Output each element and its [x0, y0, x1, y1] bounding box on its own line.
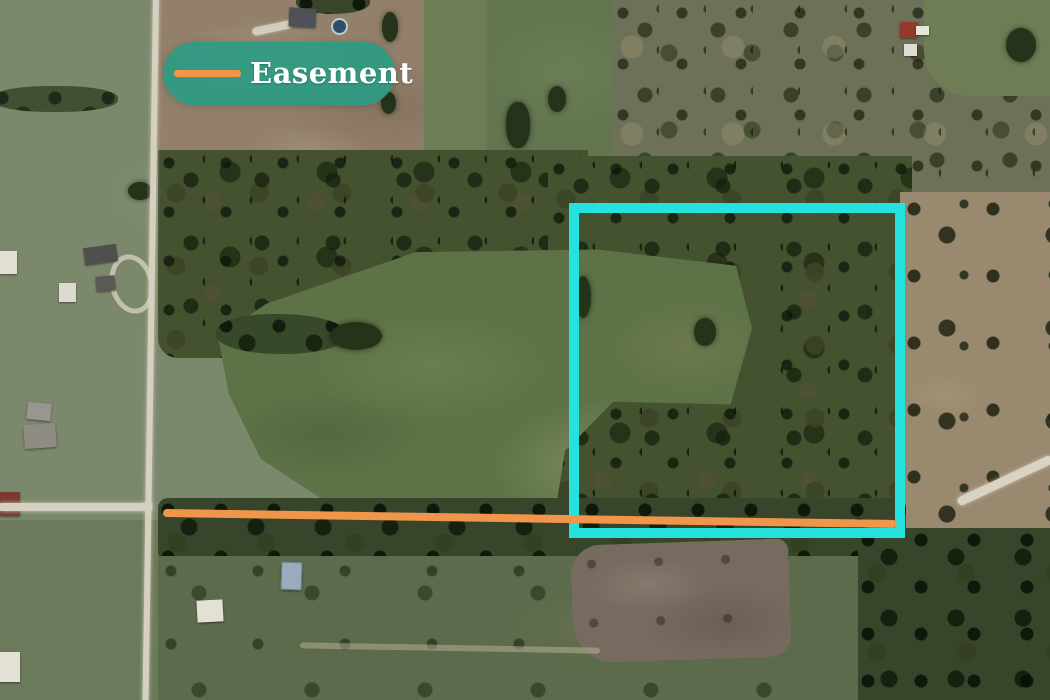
forest-south-strip — [158, 498, 906, 562]
tree-icon — [382, 12, 398, 42]
meadow — [218, 244, 752, 516]
tree-icon — [128, 182, 152, 200]
field-savanna-east — [900, 192, 1050, 530]
drive-west — [0, 503, 152, 511]
house-dark-roof — [289, 7, 317, 27]
house-gray-roof — [23, 423, 57, 449]
tree-icon — [694, 318, 716, 346]
forest-east — [548, 156, 912, 560]
hedgerow-west — [0, 86, 118, 112]
house-red-roof-west — [0, 492, 20, 516]
house-garage — [916, 26, 929, 35]
tree-row-meadow — [216, 314, 348, 354]
house-red-roof — [900, 22, 919, 39]
house-blue-roof — [281, 562, 303, 591]
field-south — [158, 556, 878, 700]
trail-path — [956, 454, 1050, 506]
field-rough-patch — [158, 162, 246, 254]
tree-icon — [506, 102, 530, 148]
easement-swatch-icon — [174, 70, 241, 77]
house-shed — [904, 44, 917, 56]
shed-white — [196, 599, 223, 622]
trail-path-south — [300, 642, 600, 653]
map-legend: Easement — [163, 42, 395, 105]
tree-icon — [575, 276, 591, 318]
building-white — [0, 652, 20, 682]
driveway-path — [252, 20, 293, 36]
house-gray-roof — [26, 402, 52, 421]
field-southwest — [0, 520, 158, 700]
pool-icon — [331, 18, 348, 35]
building-white-edge — [0, 251, 17, 274]
satellite-map: Easement — [0, 0, 1050, 700]
lawn-northeast — [924, 0, 1050, 96]
field-west — [0, 0, 1050, 700]
easement-line — [163, 509, 897, 528]
legend-label: Easement — [250, 59, 413, 88]
farm-shed-white — [59, 283, 76, 302]
tree-icon — [330, 322, 382, 350]
forest-central-band — [158, 150, 588, 358]
field-green-north — [424, 0, 660, 180]
forest-southeast — [858, 528, 1050, 700]
parcel-boundary — [569, 203, 905, 538]
barn-dark-roof — [83, 244, 118, 265]
tree-icon — [1006, 28, 1036, 62]
tree-icon — [548, 86, 566, 112]
dirt-clearing-south — [570, 538, 792, 664]
woods-northeast — [612, 0, 1050, 198]
farm-house — [95, 275, 115, 292]
farm-loop-drive — [103, 250, 160, 319]
road-north-south — [142, 0, 159, 700]
trees-top — [296, 0, 370, 14]
